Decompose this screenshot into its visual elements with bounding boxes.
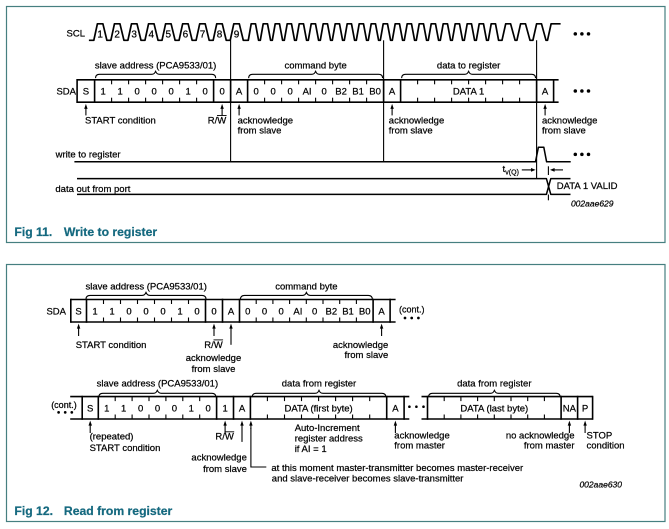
svg-text:data from register: data from register bbox=[282, 379, 356, 390]
svg-text:1: 1 bbox=[177, 306, 182, 317]
svg-text:A: A bbox=[392, 403, 399, 414]
svg-text:R/W: R/W bbox=[215, 432, 234, 443]
svg-text:(cont.): (cont.) bbox=[51, 400, 77, 410]
svg-text:(cont.): (cont.) bbox=[399, 305, 425, 315]
svg-text:0: 0 bbox=[126, 306, 131, 317]
svg-text:5: 5 bbox=[166, 29, 172, 40]
svg-text:command byte: command byte bbox=[275, 281, 337, 292]
svg-text:from master: from master bbox=[524, 440, 575, 451]
svg-text:A: A bbox=[239, 403, 246, 414]
svg-text:NA: NA bbox=[563, 403, 577, 414]
svg-text:0: 0 bbox=[219, 87, 224, 98]
svg-text:START condition: START condition bbox=[90, 443, 161, 454]
svg-text:S: S bbox=[83, 87, 89, 98]
svg-text:002aae629: 002aae629 bbox=[571, 199, 614, 209]
svg-text:B2: B2 bbox=[325, 306, 337, 317]
svg-text:A: A bbox=[236, 87, 243, 98]
svg-text:AI: AI bbox=[303, 87, 312, 98]
svg-text:7: 7 bbox=[200, 29, 206, 40]
svg-text:B1: B1 bbox=[342, 306, 354, 317]
svg-text:A: A bbox=[378, 306, 385, 317]
svg-text:(repeated): (repeated) bbox=[90, 432, 134, 443]
svg-text:B2: B2 bbox=[335, 87, 347, 98]
svg-text:P: P bbox=[582, 403, 588, 414]
svg-text:1: 1 bbox=[222, 403, 227, 414]
svg-text:0: 0 bbox=[279, 306, 284, 317]
svg-text:slave address (PCA9533/01): slave address (PCA9533/01) bbox=[85, 281, 206, 292]
svg-text:0: 0 bbox=[287, 87, 292, 98]
svg-text:from slave: from slave bbox=[192, 364, 236, 375]
svg-text:condition: condition bbox=[587, 440, 625, 451]
svg-text:8: 8 bbox=[217, 29, 223, 40]
svg-text:from slave: from slave bbox=[203, 464, 247, 475]
svg-text:acknowledge: acknowledge bbox=[186, 353, 241, 364]
svg-text:Fig 12.: Fig 12. bbox=[14, 504, 53, 518]
svg-text:0: 0 bbox=[321, 87, 326, 98]
svg-text:0: 0 bbox=[134, 87, 139, 98]
svg-text:Fig 11.: Fig 11. bbox=[14, 225, 52, 239]
svg-text:write to register: write to register bbox=[55, 150, 121, 161]
svg-text:0: 0 bbox=[172, 403, 177, 414]
svg-text:Auto-Increment: Auto-Increment bbox=[295, 423, 360, 434]
svg-text:6: 6 bbox=[183, 29, 189, 40]
svg-text:command byte: command byte bbox=[284, 60, 346, 71]
svg-text:0: 0 bbox=[138, 403, 143, 414]
svg-text:SCL: SCL bbox=[67, 28, 85, 39]
svg-text:v(Q): v(Q) bbox=[505, 169, 519, 176]
svg-text:1: 1 bbox=[100, 87, 105, 98]
svg-text:1: 1 bbox=[189, 403, 194, 414]
svg-text:0: 0 bbox=[206, 403, 211, 414]
svg-text:0: 0 bbox=[160, 306, 165, 317]
svg-text:S: S bbox=[75, 306, 81, 317]
svg-text:A: A bbox=[228, 306, 235, 317]
svg-text:0: 0 bbox=[194, 306, 199, 317]
svg-text:0: 0 bbox=[211, 306, 216, 317]
svg-text:0: 0 bbox=[262, 306, 267, 317]
svg-text:SDA: SDA bbox=[46, 306, 66, 317]
svg-text:1: 1 bbox=[104, 403, 109, 414]
svg-text:slave address (PCA9533/01): slave address (PCA9533/01) bbox=[97, 379, 218, 390]
svg-text:SDA: SDA bbox=[56, 87, 76, 98]
svg-text:Write to register: Write to register bbox=[64, 225, 157, 239]
svg-text:from slave: from slave bbox=[238, 126, 282, 137]
svg-text:from slave: from slave bbox=[542, 126, 586, 137]
svg-text:1: 1 bbox=[97, 29, 103, 40]
svg-text:data out from port: data out from port bbox=[55, 184, 130, 195]
svg-text:from slave: from slave bbox=[344, 350, 388, 361]
svg-text:B0: B0 bbox=[359, 306, 371, 317]
svg-text:1: 1 bbox=[121, 403, 126, 414]
svg-text:from slave: from slave bbox=[389, 126, 433, 137]
svg-text:and slave-receiver becomes sla: and slave-receiver becomes slave-transmi… bbox=[272, 474, 464, 485]
svg-text:data from register: data from register bbox=[457, 379, 531, 390]
svg-text:1: 1 bbox=[185, 87, 190, 98]
svg-text:R/W: R/W bbox=[204, 340, 223, 351]
svg-text:S: S bbox=[87, 403, 93, 414]
svg-text:AI: AI bbox=[293, 306, 302, 317]
svg-text:0: 0 bbox=[155, 403, 160, 414]
svg-text:2: 2 bbox=[114, 29, 120, 40]
svg-text:acknowledge: acknowledge bbox=[333, 340, 388, 351]
svg-text:DATA (last byte): DATA (last byte) bbox=[460, 403, 528, 414]
svg-text:0: 0 bbox=[202, 87, 207, 98]
svg-text:0: 0 bbox=[253, 87, 258, 98]
svg-text:0: 0 bbox=[245, 306, 250, 317]
svg-text:3: 3 bbox=[131, 29, 137, 40]
svg-text:4: 4 bbox=[149, 29, 155, 40]
svg-text:Read from register: Read from register bbox=[64, 504, 173, 518]
svg-text:START condition: START condition bbox=[76, 340, 147, 351]
svg-text:0: 0 bbox=[168, 87, 173, 98]
svg-text:B0: B0 bbox=[369, 87, 381, 98]
svg-text:if AI = 1: if AI = 1 bbox=[295, 444, 327, 455]
svg-text:0: 0 bbox=[151, 87, 156, 98]
svg-text:002aae630: 002aae630 bbox=[579, 479, 622, 489]
svg-text:9: 9 bbox=[234, 29, 240, 40]
svg-text:DATA 1 VALID: DATA 1 VALID bbox=[557, 181, 618, 192]
svg-text:data to register: data to register bbox=[437, 60, 500, 71]
svg-text:A: A bbox=[389, 87, 396, 98]
svg-text:DATA 1: DATA 1 bbox=[453, 87, 484, 98]
svg-text:0: 0 bbox=[312, 306, 317, 317]
svg-text:START condition: START condition bbox=[85, 115, 156, 126]
svg-text:from master: from master bbox=[394, 440, 445, 451]
svg-text:1: 1 bbox=[109, 306, 114, 317]
svg-text:1: 1 bbox=[92, 306, 97, 317]
svg-text:acknowledge: acknowledge bbox=[191, 453, 246, 464]
svg-text:slave address (PCA9533/01): slave address (PCA9533/01) bbox=[95, 60, 216, 71]
svg-text:B1: B1 bbox=[352, 87, 364, 98]
svg-text:A: A bbox=[542, 87, 549, 98]
svg-text:DATA (first byte): DATA (first byte) bbox=[284, 403, 352, 414]
svg-text:0: 0 bbox=[270, 87, 275, 98]
svg-text:0: 0 bbox=[143, 306, 148, 317]
svg-text:1: 1 bbox=[117, 87, 122, 98]
svg-text:at this moment master-transmit: at this moment master-transmitter become… bbox=[271, 463, 523, 474]
svg-text:R/W: R/W bbox=[208, 115, 227, 126]
